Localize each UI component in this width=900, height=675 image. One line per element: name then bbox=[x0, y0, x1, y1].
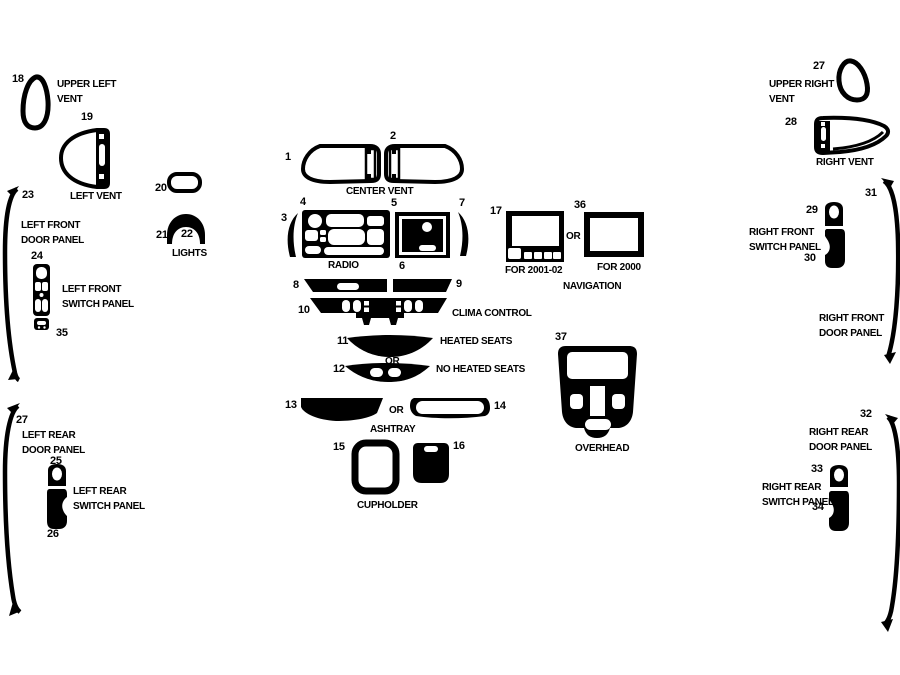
part-17-navigation-2001-02-shape bbox=[506, 211, 564, 262]
part-number-9: 9 bbox=[456, 279, 462, 290]
part-number-16: 16 bbox=[453, 441, 465, 452]
caption-right-rear-door-panel: RIGHT REAR DOOR PANEL bbox=[809, 426, 879, 455]
part-number-20: 20 bbox=[155, 183, 167, 194]
part-20-trim-plate-shape bbox=[169, 174, 200, 191]
caption-upper-right-vent: UPPER RIGHT VENT bbox=[769, 78, 839, 107]
part-number-19: 19 bbox=[81, 112, 93, 123]
part-25-26-left-rear-switch-panel-shape bbox=[47, 464, 67, 529]
part-number-7: 7 bbox=[459, 198, 465, 209]
part-5-6-storage-pocket-shape bbox=[395, 212, 450, 258]
caption-radio: RADIO bbox=[328, 259, 359, 274]
part-1-center-vent-left-shape bbox=[303, 146, 379, 182]
caption-or-seats: OR bbox=[385, 355, 399, 370]
part-number-27-upper-right: 27 bbox=[813, 61, 825, 72]
part-number-6: 6 bbox=[399, 261, 405, 272]
caption-or-navigation: OR bbox=[566, 230, 580, 245]
part-number-35: 35 bbox=[56, 328, 68, 339]
part-number-32: 32 bbox=[860, 409, 872, 420]
caption-navigation: NAVIGATION bbox=[563, 280, 621, 295]
part-number-4: 4 bbox=[300, 197, 306, 208]
part-18-upper-left-vent-shape bbox=[23, 77, 48, 128]
part-number-18: 18 bbox=[12, 74, 24, 85]
part-number-37: 37 bbox=[555, 332, 567, 343]
part-28-right-vent-shape bbox=[816, 118, 888, 153]
part-13-ashtray-solid-shape bbox=[301, 398, 383, 421]
caption-left-rear-switch-panel: LEFT REAR SWITCH PANEL bbox=[73, 485, 153, 514]
part-27-left-rear-door-panel-shape bbox=[5, 403, 21, 616]
part-number-12: 12 bbox=[333, 364, 345, 375]
caption-for-2000: FOR 2000 bbox=[597, 261, 641, 276]
caption-lights: LIGHTS bbox=[172, 247, 207, 262]
part-number-36: 36 bbox=[574, 200, 586, 211]
part-32-right-rear-door-panel-shape bbox=[881, 414, 899, 632]
part-number-22: 22 bbox=[181, 229, 193, 240]
caption-overhead: OVERHEAD bbox=[575, 442, 629, 457]
caption-no-heated-seats: NO HEATED SEATS bbox=[436, 363, 525, 378]
part-8-clima-trim-left-shape bbox=[304, 279, 387, 292]
part-number-23: 23 bbox=[22, 190, 34, 201]
part-number-28: 28 bbox=[785, 117, 797, 128]
part-number-11: 11 bbox=[337, 336, 348, 347]
caption-left-vent: LEFT VENT bbox=[70, 190, 122, 205]
part-14-ashtray-open-shape bbox=[410, 398, 490, 418]
caption-for-2001-02: FOR 2001-02 bbox=[505, 264, 562, 279]
caption-right-rear-switch-panel: RIGHT REAR SWITCH PANEL bbox=[762, 481, 842, 510]
part-15-cupholder-frame-shape bbox=[355, 443, 396, 491]
caption-upper-left-vent: UPPER LEFT VENT bbox=[57, 78, 123, 107]
caption-or-ashtray: OR bbox=[389, 404, 403, 419]
caption-right-front-door-panel: RIGHT FRONT DOOR PANEL bbox=[819, 312, 889, 341]
part-3-radio-side-trim-left-shape bbox=[288, 213, 298, 257]
part-19-left-vent-shape bbox=[61, 130, 108, 187]
part-number-29: 29 bbox=[806, 205, 818, 216]
part-number-31: 31 bbox=[865, 188, 877, 199]
part-number-26: 26 bbox=[47, 529, 59, 540]
part-number-21: 21 bbox=[156, 230, 168, 241]
caption-ashtray: ASHTRAY bbox=[370, 423, 415, 438]
part-11-heated-seats-shape bbox=[347, 335, 433, 357]
part-number-14: 14 bbox=[494, 401, 506, 412]
caption-clima-control: CLIMA CONTROL bbox=[452, 307, 532, 322]
part-number-15: 15 bbox=[333, 442, 345, 453]
part-number-17: 17 bbox=[490, 206, 502, 217]
part-number-1: 1 bbox=[285, 152, 291, 163]
caption-left-front-switch-panel: LEFT FRONT SWITCH PANEL bbox=[62, 283, 142, 312]
part-number-5: 5 bbox=[391, 198, 397, 209]
part-number-8: 8 bbox=[293, 280, 299, 291]
part-16-cupholder-lid-shape bbox=[413, 443, 449, 483]
part-36-navigation-2000-shape bbox=[584, 212, 644, 257]
dash-kit-diagram: 18 19 20 21 22 23 24 35 1 2 3 4 5 6 7 17… bbox=[0, 0, 900, 675]
caption-center-vent: CENTER VENT bbox=[346, 185, 413, 200]
caption-right-front-switch-panel: RIGHT FRONT SWITCH PANEL bbox=[749, 226, 829, 255]
caption-left-rear-door-panel: LEFT REAR DOOR PANEL bbox=[22, 429, 92, 458]
part-23-left-front-door-panel-shape bbox=[5, 186, 19, 380]
part-number-24: 24 bbox=[31, 251, 43, 262]
caption-cupholder: CUPHOLDER bbox=[357, 499, 418, 514]
part-number-33: 33 bbox=[811, 464, 823, 475]
part-37-overhead-console-shape bbox=[558, 346, 637, 438]
part-2-center-vent-right-shape bbox=[386, 146, 462, 182]
caption-right-vent: RIGHT VENT bbox=[816, 156, 874, 171]
caption-left-front-door-panel: LEFT FRONT DOOR PANEL bbox=[21, 219, 91, 248]
part-24-35-left-front-switch-panel-shape bbox=[33, 264, 50, 330]
part-7-radio-side-trim-right-shape bbox=[458, 212, 468, 256]
part-9-clima-trim-right-shape bbox=[393, 279, 452, 292]
part-10-clima-control-bezel-shape bbox=[310, 298, 447, 325]
part-number-10: 10 bbox=[298, 305, 310, 316]
part-27-upper-right-vent-shape bbox=[839, 61, 868, 100]
part-number-3: 3 bbox=[281, 213, 287, 224]
part-number-2: 2 bbox=[390, 131, 396, 142]
part-number-13: 13 bbox=[285, 400, 297, 411]
caption-heated-seats: HEATED SEATS bbox=[440, 335, 512, 350]
part-4-radio-bezel-shape bbox=[302, 210, 390, 258]
part-number-27-left-rear: 27 bbox=[16, 415, 28, 426]
